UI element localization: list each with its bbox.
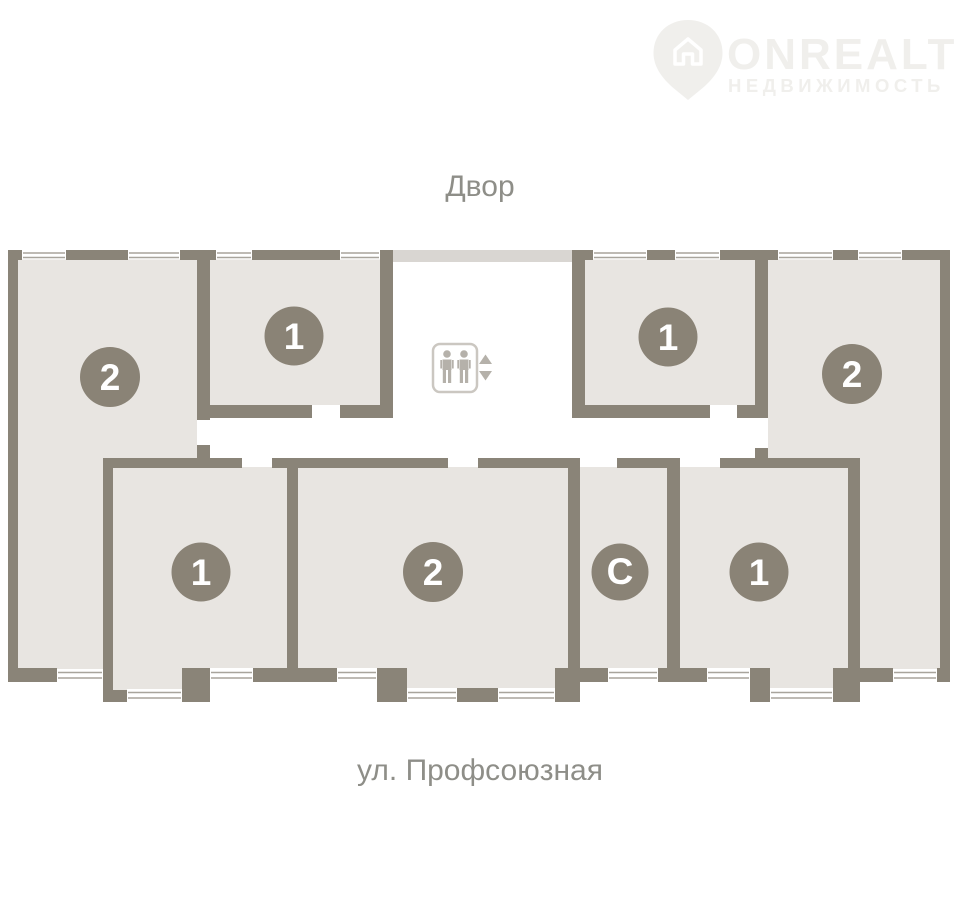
badge-label: 1 <box>191 552 212 593</box>
room-areas <box>18 258 940 690</box>
badge-apt-1-top-right[interactable]: 1 <box>639 308 698 367</box>
wall-segment <box>848 458 860 690</box>
wall-segment <box>8 668 57 682</box>
watermark-subtitle: НЕДВИЖИМОСТЬ <box>728 75 945 96</box>
window <box>707 669 750 681</box>
badge-label: 1 <box>284 316 305 357</box>
wall-segment <box>253 668 337 682</box>
wall-segment <box>833 250 858 260</box>
watermark-brand: ONREALT <box>727 30 957 79</box>
wall-segment <box>850 668 893 682</box>
badge-label: 2 <box>423 552 444 593</box>
window <box>608 669 658 681</box>
window <box>340 251 380 260</box>
window <box>778 251 833 260</box>
window <box>593 251 647 260</box>
wall-segment <box>720 250 778 260</box>
courtyard-label: Двор <box>445 170 514 203</box>
wall-segment <box>377 668 407 702</box>
badge-apt-2-right[interactable]: 2 <box>822 344 882 404</box>
wall-segment <box>737 405 768 418</box>
wall-segment <box>113 690 127 702</box>
street-name-label: ул. Профсоюзная <box>357 754 603 787</box>
wall-segment <box>340 405 393 418</box>
window <box>127 689 182 701</box>
badge-apt-1-top-left[interactable]: 1 <box>265 307 324 366</box>
wall-segment <box>252 250 340 260</box>
window <box>893 669 937 681</box>
window <box>57 669 103 681</box>
badge-label: 2 <box>842 354 863 395</box>
wall-segment <box>457 688 498 702</box>
wall-segment <box>572 405 710 418</box>
wall-segment <box>647 250 675 260</box>
badge-apt-2-bottom-center[interactable]: 2 <box>403 542 463 602</box>
wall-segment <box>272 458 448 468</box>
window <box>216 251 252 260</box>
wall-segment <box>380 250 393 418</box>
wall-segment <box>197 250 210 420</box>
wall-segment <box>478 458 568 468</box>
window <box>770 689 833 701</box>
badge-apt-2-top-left[interactable]: 2 <box>80 347 140 407</box>
floorplan-canvas: ONREALT НЕДВИЖИМОСТЬ Двор ул. Профсоюзна… <box>0 0 960 910</box>
wall-segment <box>568 668 608 682</box>
wall-segment <box>572 250 585 418</box>
lobby-strip <box>390 250 573 262</box>
window <box>22 251 66 260</box>
elevator-icon <box>433 344 492 392</box>
window <box>210 669 253 681</box>
watermark-logo: ONREALT НЕДВИЖИМОСТЬ <box>654 20 958 100</box>
wall-segment <box>66 250 128 260</box>
badge-apt-studio[interactable]: С <box>592 544 649 601</box>
location-pin-icon <box>654 20 723 100</box>
window <box>337 669 377 681</box>
badge-label: 1 <box>658 317 679 358</box>
window <box>675 251 720 260</box>
arrow-down-icon <box>479 371 492 381</box>
wall-segment <box>103 458 113 702</box>
window <box>498 689 555 701</box>
window <box>858 251 902 260</box>
window <box>407 689 457 701</box>
badge-label: С <box>607 551 634 592</box>
wall-segment <box>197 405 312 418</box>
wall-segment <box>197 445 210 458</box>
badge-label: 2 <box>100 357 121 398</box>
wall-segment <box>720 458 848 468</box>
wall-segment <box>750 668 770 702</box>
wall-segment <box>940 250 950 682</box>
wall-segment <box>667 458 680 682</box>
wall-segment <box>8 250 18 682</box>
wall-segment <box>658 668 707 682</box>
arrow-up-icon <box>479 355 492 365</box>
wall-segment <box>103 458 242 468</box>
badge-apt-1-bottom-left[interactable]: 1 <box>172 543 231 602</box>
wall-segment <box>617 458 680 468</box>
wall-segment <box>755 250 768 410</box>
badge-label: 1 <box>749 552 770 593</box>
wall-segment <box>937 668 950 682</box>
window <box>128 251 180 260</box>
wall-segment <box>182 668 210 702</box>
badge-apt-1-bottom-right[interactable]: 1 <box>730 543 789 602</box>
wall-segment <box>287 458 298 682</box>
wall-segment <box>568 458 580 682</box>
